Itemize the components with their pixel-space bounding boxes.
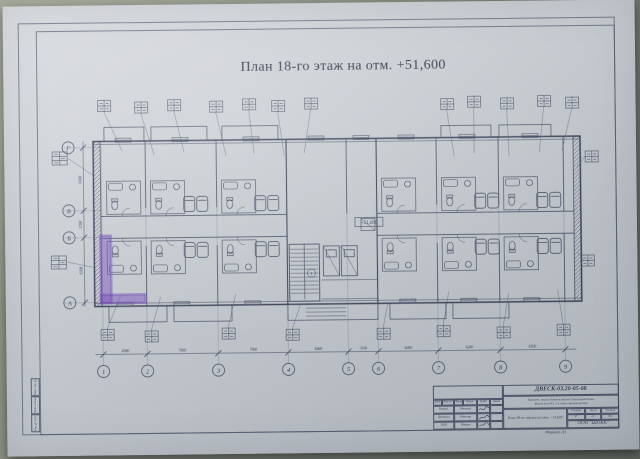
bathroom-units: [106, 177, 538, 275]
signature-role: ГИП: [433, 422, 454, 430]
svg-text:8: 8: [499, 365, 502, 371]
svg-text:6300: 6300: [78, 176, 82, 184]
signature-name: Иванов: [454, 421, 477, 429]
stair-core: 1: [289, 218, 378, 301]
corridor-walls: [101, 211, 574, 238]
svg-text:Б: Б: [66, 236, 71, 242]
signature-name: Иванова: [454, 405, 477, 413]
svg-text:5: 5: [347, 367, 350, 373]
svg-text:А: А: [67, 301, 72, 307]
balconies: [104, 122, 553, 322]
svg-text:9: 9: [564, 365, 567, 371]
dimension-lines: [80, 136, 576, 358]
signature-squiggle: [479, 422, 489, 428]
signature-squiggle: [479, 414, 489, 420]
svg-text:6240: 6240: [466, 345, 474, 349]
signature-name: Иванова: [454, 413, 477, 421]
highlight-marker: [99, 234, 147, 305]
svg-text:+51,600: +51,600: [360, 221, 378, 226]
sheet-title-stamp: План 18-го этажа на отм. +51,600: [503, 408, 567, 429]
svg-text:Г: Г: [65, 146, 70, 152]
photo-background: План 18-го этаж на отм. +51,600: [0, 0, 640, 459]
svg-text:7060: 7060: [179, 349, 187, 353]
company-name: ООО "ШОКК": [567, 420, 619, 429]
svg-text:6: 6: [377, 367, 380, 373]
svg-text:4380: 4380: [122, 349, 130, 353]
side-stamp-label: Взам. инв. №: [34, 379, 37, 395]
stair-callout: 1: [310, 271, 312, 276]
format-note: Формат А3: [545, 429, 566, 434]
elevator-shafts: [323, 246, 357, 276]
window-marks: [115, 134, 540, 307]
svg-text:В: В: [67, 209, 71, 215]
side-stamp-label: Инв. № подл.: [34, 415, 37, 431]
title-block: Изм. Кол.уч. Лист №док. Подп. Дата Разра…: [433, 384, 619, 430]
side-stamp-label: Подп. и дата: [34, 397, 37, 413]
svg-text:6300: 6300: [79, 267, 83, 275]
paper-sheet: План 18-го этаж на отм. +51,600: [2, 0, 639, 457]
svg-text:1: 1: [102, 370, 105, 376]
side-stamp: Взам. инв. № Подп. и дата Инв. № подл.: [31, 378, 41, 434]
project-name-line2: Жилой дом №5. 1-й этап строительства: [534, 401, 587, 405]
signature-role: Разраб.: [433, 406, 454, 414]
svg-text:2: 2: [146, 369, 149, 375]
svg-text:6500: 6500: [529, 345, 537, 349]
svg-text:3190: 3190: [360, 346, 368, 350]
svg-text:4: 4: [287, 367, 290, 374]
svg-text:6060: 6060: [405, 346, 413, 350]
svg-text:2700: 2700: [79, 221, 83, 229]
svg-text:7060: 7060: [250, 348, 258, 352]
building-outline: [93, 136, 582, 307]
svg-text:7: 7: [437, 366, 441, 372]
signature-squiggle: [479, 406, 489, 412]
svg-text:6060: 6060: [315, 347, 323, 351]
svg-text:3: 3: [216, 368, 220, 374]
axis-labels: 1 2 3 4 5 6 7 8 9 Г В Б А: [65, 141, 567, 377]
signature-role: Проверил: [433, 414, 454, 422]
